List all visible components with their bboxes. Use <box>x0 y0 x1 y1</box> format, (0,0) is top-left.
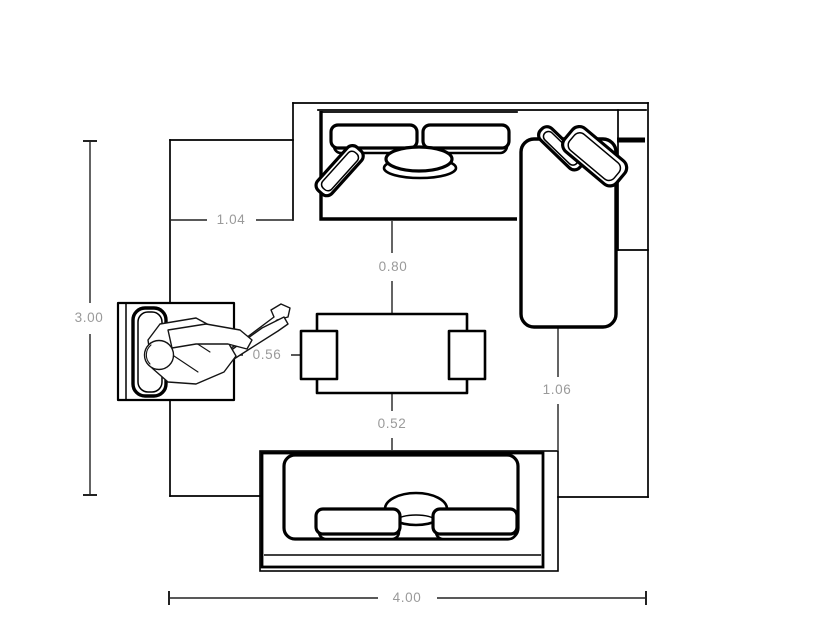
dimension-wall-to-sectional: 1.04 <box>170 212 293 227</box>
side-stool-right <box>449 331 485 379</box>
dim-label-room-width: 4.00 <box>393 590 422 605</box>
sectional-sofa <box>313 111 645 327</box>
side-stool-left <box>301 331 337 379</box>
sofa-cushion-left <box>316 509 400 534</box>
floor-plan-canvas: 3.00 4.00 1.04 0.80 0.56 0.52 1.06 <box>0 0 815 636</box>
dim-label-wall-to-sectional: 1.04 <box>217 212 246 227</box>
dimension-table-to-sofa: 0.52 <box>378 394 407 450</box>
sofa-bottom <box>260 451 558 571</box>
dim-label-chaise-to-sofa: 1.06 <box>543 382 572 397</box>
coffee-table <box>301 314 485 393</box>
dim-label-armchair-to-table: 0.56 <box>253 347 282 362</box>
bolster-pillow <box>386 147 452 171</box>
dim-label-table-to-sofa: 0.52 <box>378 416 407 431</box>
dim-label-sectional-to-table: 0.80 <box>379 259 408 274</box>
dimension-room-depth: 3.00 <box>75 141 104 495</box>
dim-label-room-depth: 3.00 <box>75 310 104 325</box>
sofa-cushion-right <box>433 509 517 534</box>
dimension-sectional-to-table: 0.80 <box>379 221 408 314</box>
seat-cushion-right <box>423 125 509 148</box>
seat-cushion-left <box>331 125 417 148</box>
person-head <box>145 341 174 370</box>
table-top <box>317 314 467 393</box>
dimension-room-width: 4.00 <box>169 590 646 605</box>
dimension-chaise-to-sofa: 1.06 <box>543 328 572 450</box>
